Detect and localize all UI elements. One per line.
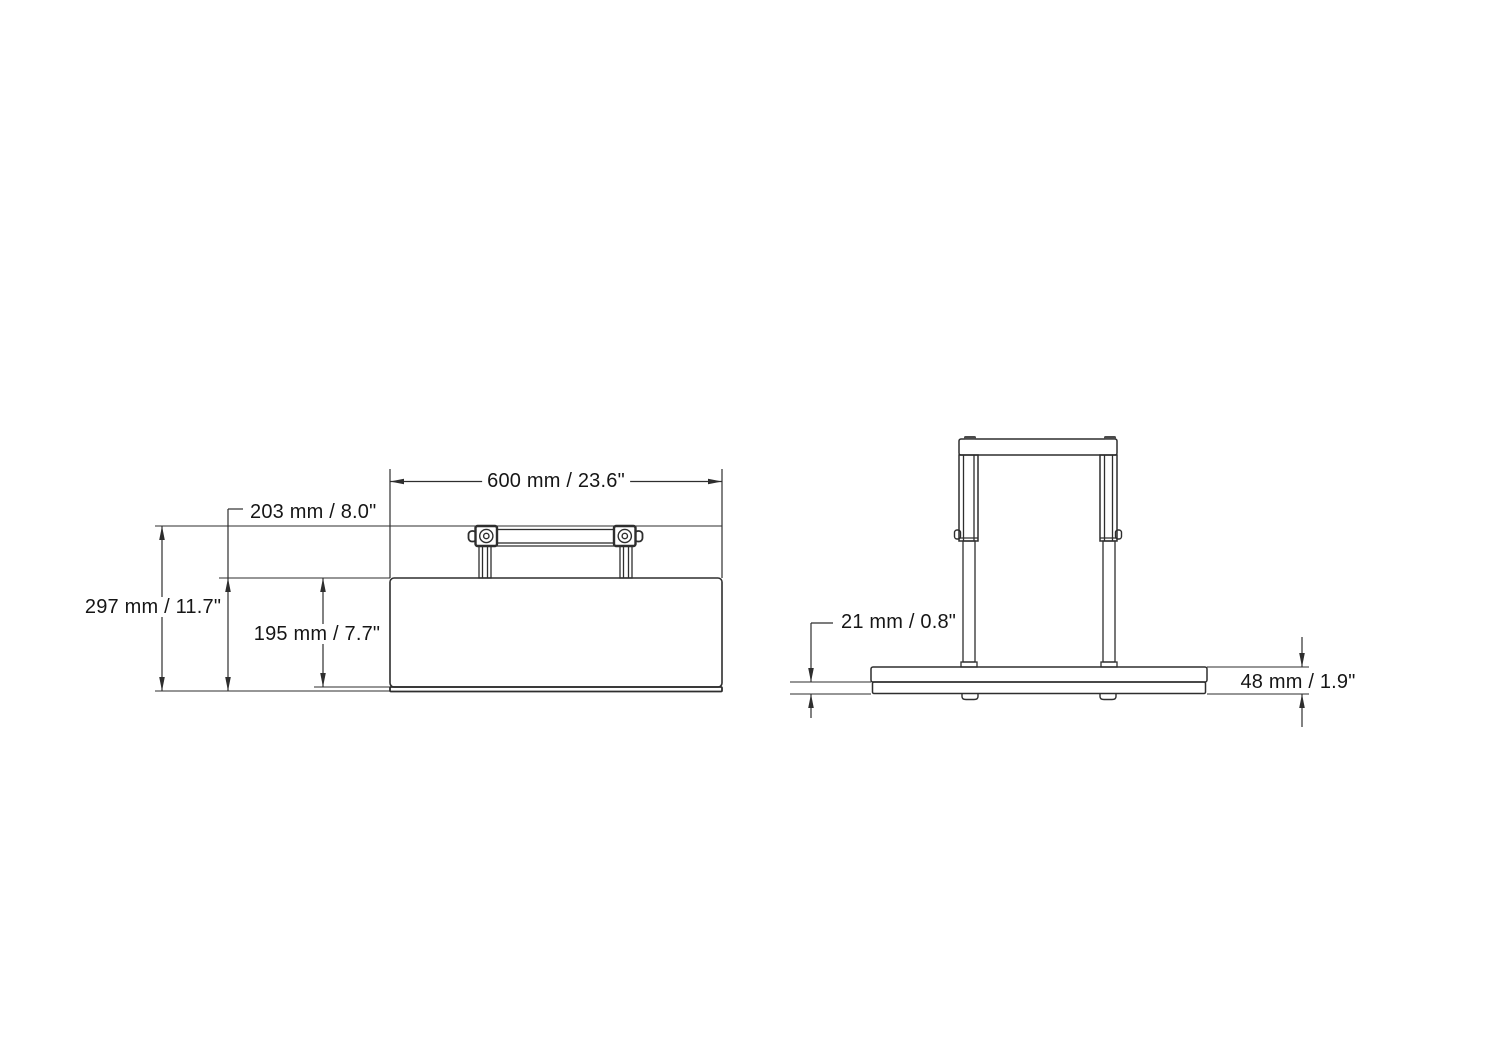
side-handle-top-right-tab [1104,436,1116,440]
dim-label-base-total-thickness: 48 mm / 1.9" [1235,672,1360,692]
dim-label-height-with-base-lip: 203 mm / 8.0" [245,502,381,522]
arrowhead-right [708,479,722,485]
side-left-rod [963,541,975,662]
side-base-upper [871,667,1207,682]
side-right-rod [1103,541,1115,662]
drawing-linework [0,0,1500,1062]
arrowhead-down [320,673,326,687]
front-view [155,469,722,692]
side-dim-pad-thickness [790,623,871,718]
arrowhead-up [320,578,326,592]
technical-drawing-canvas: 600 mm / 23.6" 203 mm / 8.0" 297 mm / 11… [0,0,1500,1062]
side-right-foot [1100,694,1116,700]
dim-label-overall-height: 297 mm / 11.7" [80,597,226,617]
side-right-sleeve [1100,455,1117,541]
front-handle-right-leg [620,546,632,578]
side-handle-top-bar [959,439,1117,455]
dim-label-base-pad-thickness: 21 mm / 0.8" [836,612,961,632]
arrowhead-up [808,694,814,708]
side-base-pad [873,682,1206,694]
arrowhead-up [159,526,165,540]
arrowhead-down [808,668,814,682]
arrowhead-down [159,677,165,691]
side-view [790,436,1309,727]
arrowhead-up [1299,694,1305,708]
front-base-lip [390,687,722,692]
arrowhead-down [225,677,231,691]
side-left-foot [962,694,978,700]
dim-label-body-height: 195 mm / 7.7" [249,624,385,644]
front-body-outline [390,578,722,687]
side-handle-frame [955,436,1122,667]
dim-label-overall-width: 600 mm / 23.6" [482,471,630,491]
front-handle-bar [497,530,614,544]
front-body [390,578,722,692]
front-handle-left-leg [479,546,491,578]
side-base-plate [871,667,1207,700]
arrowhead-left [390,479,404,485]
arrowhead-up [225,578,231,592]
side-handle-top-left-tab [964,436,976,440]
front-handle [469,526,643,578]
front-dim-lip-height [225,509,243,691]
arrowhead-down [1299,653,1305,667]
side-left-sleeve [959,455,978,541]
